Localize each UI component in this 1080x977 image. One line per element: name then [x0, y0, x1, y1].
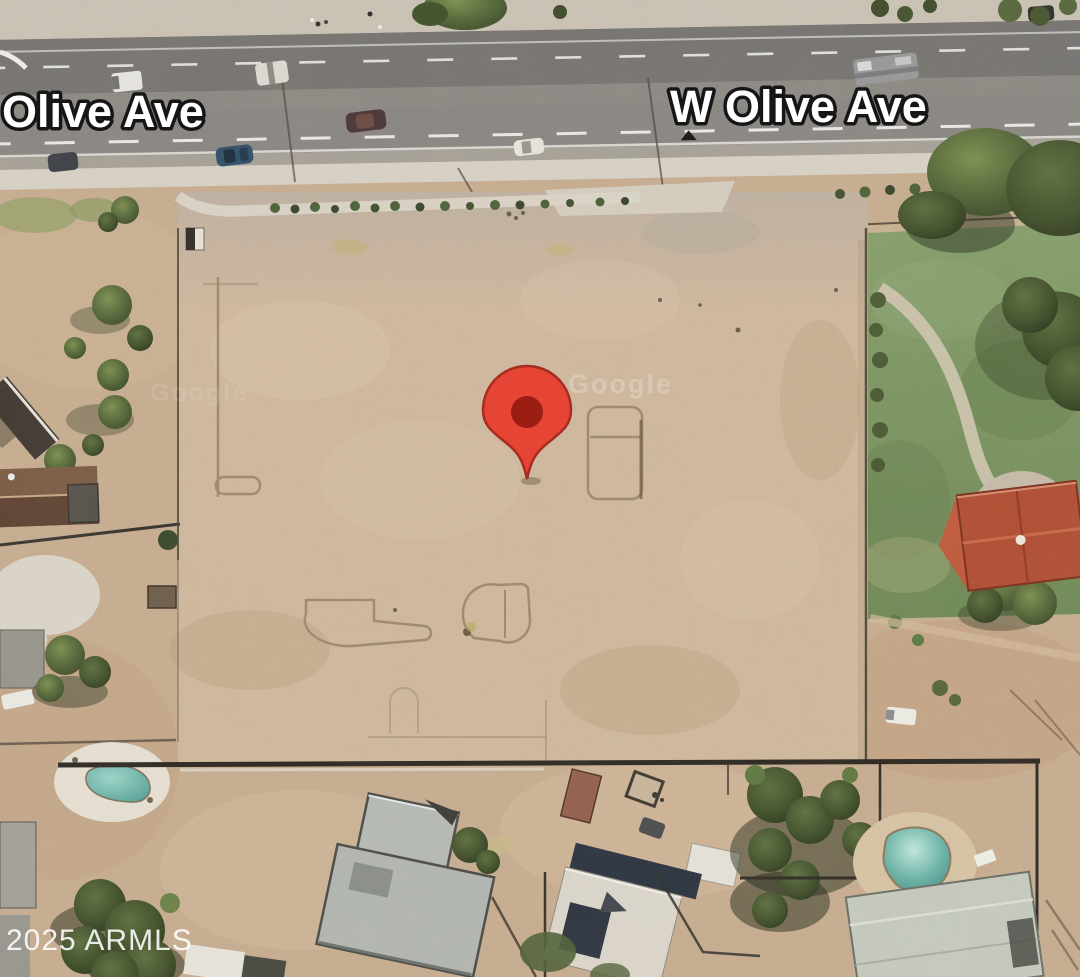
- satellite-map[interactable]: Google Google Olive Ave W Olive Ave 2025…: [0, 0, 1080, 977]
- map-canvas[interactable]: Google Google Olive Ave W Olive Ave 2025…: [0, 0, 1080, 977]
- grain-overlay: [0, 0, 1080, 977]
- pin-shadow: [521, 477, 541, 485]
- google-imagery-watermark-faint: Google: [150, 379, 248, 407]
- street-label-w-olive-ave: W Olive Ave: [670, 81, 927, 132]
- street-label-olive-ave: Olive Ave: [2, 86, 204, 137]
- armls-copyright-watermark: 2025 ARMLS: [6, 924, 193, 957]
- google-imagery-watermark: Google: [568, 369, 673, 399]
- pin-inner-dot: [511, 396, 543, 428]
